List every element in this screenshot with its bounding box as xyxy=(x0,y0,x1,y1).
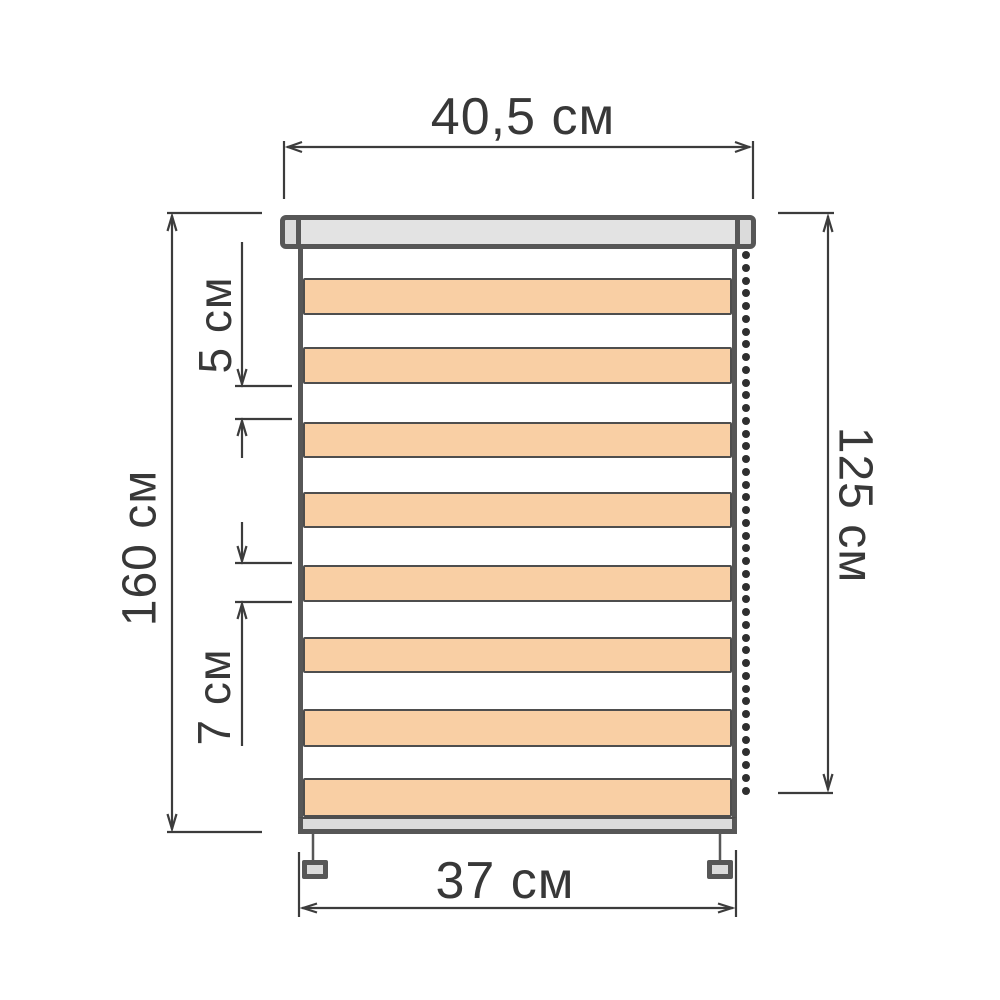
chain-bead xyxy=(742,264,750,272)
dim-top-width xyxy=(284,141,753,199)
fabric-stripe xyxy=(303,637,732,673)
chain-bead xyxy=(742,532,750,540)
fabric-stripe xyxy=(303,347,732,384)
chain-bead xyxy=(742,506,750,514)
chain-bead xyxy=(742,455,750,463)
chain-bead xyxy=(742,659,750,667)
chain-bead xyxy=(742,404,750,412)
chain-bead xyxy=(742,723,750,731)
chain-bead xyxy=(742,685,750,693)
fabric-panel xyxy=(298,249,737,817)
chain-bead xyxy=(742,366,750,374)
top-width-label: 40,5 см xyxy=(431,87,615,147)
chain-bead xyxy=(742,379,750,387)
chain-bead xyxy=(742,634,750,642)
dim-open-stripe xyxy=(235,242,292,458)
chain-bead xyxy=(742,315,750,323)
fabric-width-label: 37 см xyxy=(435,851,574,911)
chain-bead xyxy=(742,570,750,578)
chain-bead xyxy=(742,430,750,438)
chain-bead xyxy=(742,672,750,680)
chain-bead xyxy=(742,710,750,718)
chain-bead xyxy=(742,761,750,769)
chain-bead xyxy=(742,251,750,259)
chain-bead xyxy=(742,774,750,782)
bottom-weight-bar xyxy=(298,817,737,834)
cassette-headrail xyxy=(280,215,756,249)
fabric-stripe xyxy=(303,778,732,817)
fabric-stripe xyxy=(303,492,732,528)
total-height-label: 160 см xyxy=(113,470,168,626)
chain-bead xyxy=(742,417,750,425)
chain-bead xyxy=(742,583,750,591)
cassette-end-cap-left xyxy=(285,220,301,244)
chain-bead xyxy=(742,468,750,476)
chain-bead xyxy=(742,519,750,527)
fabric-stripe xyxy=(303,422,732,458)
chain-bead xyxy=(742,787,750,795)
fabric-stripe xyxy=(303,278,732,315)
dim-solid-stripe xyxy=(235,522,292,746)
open-stripe-label: 5 см xyxy=(188,277,242,374)
chain-bead xyxy=(742,481,750,489)
chain-bead xyxy=(742,277,750,285)
chain-bead xyxy=(742,353,750,361)
roller-blind-dimension-diagram: 40,5 см 37 см 160 см 125 см 5 см 7 см xyxy=(0,0,1000,1000)
mounting-bracket-left xyxy=(302,860,328,879)
solid-stripe-label: 7 см xyxy=(187,649,241,746)
chain-bead xyxy=(742,302,750,310)
fabric-stripe xyxy=(303,565,732,602)
chain-bead xyxy=(742,557,750,565)
chain-bead xyxy=(742,328,750,336)
fabric-stripe xyxy=(303,709,732,747)
dim-chain-length xyxy=(778,213,834,793)
mounting-bracket-right xyxy=(707,860,733,879)
cassette-end-cap-right xyxy=(735,220,751,244)
chain-bead xyxy=(742,621,750,629)
chain-bead xyxy=(742,736,750,744)
chain-bead xyxy=(742,608,750,616)
chain-length-label: 125 см xyxy=(828,427,883,583)
